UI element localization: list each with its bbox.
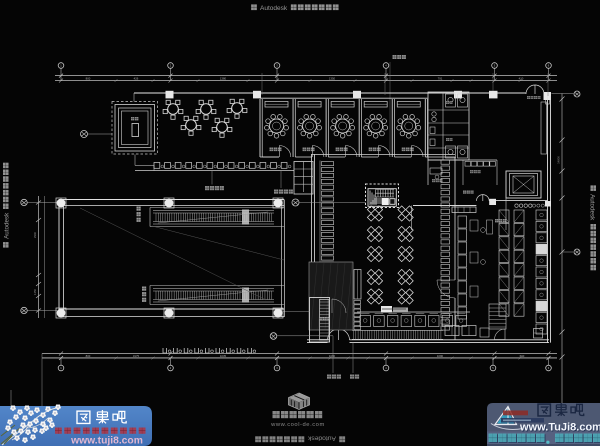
svg-text:Autodesk: Autodesk: [589, 194, 596, 221]
svg-text:1035: 1035: [220, 354, 227, 358]
svg-text:www.cool-de.com: www.cool-de.com: [270, 422, 325, 428]
svg-text:410: 410: [519, 76, 524, 80]
svg-text:1380: 1380: [220, 76, 227, 80]
svg-text:Autodesk: Autodesk: [260, 5, 288, 12]
svg-text:1090: 1090: [437, 354, 444, 358]
svg-text:Autodesk: Autodesk: [307, 435, 336, 442]
svg-text:426: 426: [134, 76, 139, 80]
svg-text:14800: 14800: [557, 156, 561, 164]
svg-text:1450: 1450: [33, 288, 37, 295]
svg-text:1350: 1350: [329, 76, 336, 80]
svg-text:Autodesk: Autodesk: [3, 212, 10, 239]
svg-text:3175: 3175: [133, 354, 140, 358]
svg-text:www.tuji8.com: www.tuji8.com: [70, 436, 143, 446]
svg-text:800: 800: [86, 76, 91, 80]
svg-text:800: 800: [86, 354, 91, 358]
svg-text:791: 791: [438, 76, 443, 80]
svg-text:1090: 1090: [329, 354, 336, 358]
svg-text:690: 690: [520, 354, 525, 358]
svg-text:www.TuJi8.com: www.TuJi8.com: [519, 422, 600, 434]
svg-text:2960: 2960: [33, 231, 37, 238]
